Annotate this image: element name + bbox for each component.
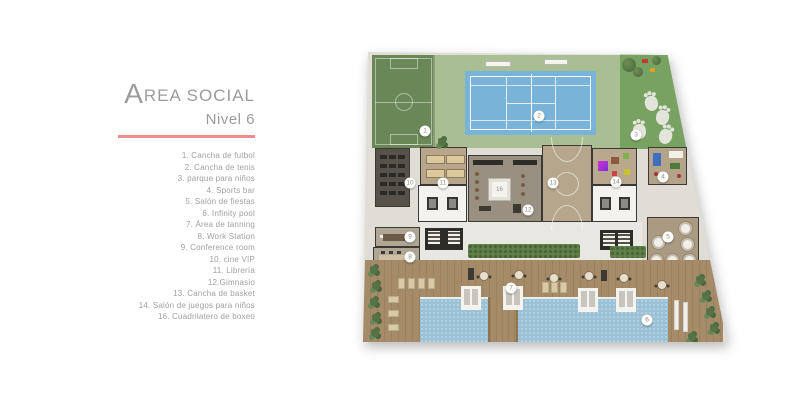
legend-item: 8. Work Station bbox=[139, 231, 255, 243]
plan-marker-14: 14 bbox=[611, 177, 622, 188]
legend-item: 11. Librería bbox=[139, 265, 255, 277]
legend-item: 9. Conference room bbox=[139, 242, 255, 254]
title-rest: REA SOCIAL bbox=[144, 86, 255, 105]
plan-marker-8: 8 bbox=[405, 252, 416, 263]
legend-item: 5. Salón de fiestas bbox=[139, 196, 255, 208]
plan-marker-12: 12 bbox=[523, 205, 534, 216]
plan-marker-1: 1 bbox=[420, 126, 431, 137]
legend-item: 7. Área de tanning bbox=[139, 219, 255, 231]
plan-marker-13: 13 bbox=[548, 178, 559, 189]
floor-plan: 16 bbox=[358, 38, 776, 360]
floor-plan-slab: 16 bbox=[358, 38, 776, 360]
legend-list: 1. Cancha de futbol2. Cancha de tenis3. … bbox=[139, 150, 255, 323]
legend-item: 3. parque para niños bbox=[139, 173, 255, 185]
page-subtitle: Nivel 6 bbox=[206, 111, 255, 128]
accent-underline bbox=[118, 135, 255, 138]
legend-item: 14. Salón de juegos para niños bbox=[139, 300, 255, 312]
plan-marker-4: 4 bbox=[658, 172, 669, 183]
plan-marker-5: 5 bbox=[663, 232, 674, 243]
legend-item: 13. Cancha de basket bbox=[139, 288, 255, 300]
page-title: AREA SOCIAL bbox=[124, 80, 255, 108]
plan-marker-2: 2 bbox=[534, 111, 545, 122]
legend-item: 12.Gimnasio bbox=[139, 277, 255, 289]
marker-layer: 1234567891011121314 bbox=[358, 38, 776, 360]
legend-item: 6. Infinity pool bbox=[139, 208, 255, 220]
plan-marker-10: 10 bbox=[405, 178, 416, 189]
legend-item: 4. Sports bar bbox=[139, 185, 255, 197]
info-panel: AREA SOCIAL Nivel 6 1. Cancha de futbol2… bbox=[0, 0, 256, 400]
legend-item: 2. Cancha de tenis bbox=[139, 162, 255, 174]
plan-marker-6: 6 bbox=[642, 315, 653, 326]
legend-item: 1. Cancha de futbol bbox=[139, 150, 255, 162]
plan-marker-7: 7 bbox=[506, 283, 517, 294]
plan-marker-3: 3 bbox=[631, 130, 642, 141]
plan-marker-11: 11 bbox=[438, 178, 449, 189]
legend-item: 16. Cuadrilatero de boxeo bbox=[139, 311, 255, 323]
legend-item: 10. cine VIP bbox=[139, 254, 255, 266]
plan-marker-9: 9 bbox=[405, 232, 416, 243]
title-initial: A bbox=[124, 78, 144, 109]
